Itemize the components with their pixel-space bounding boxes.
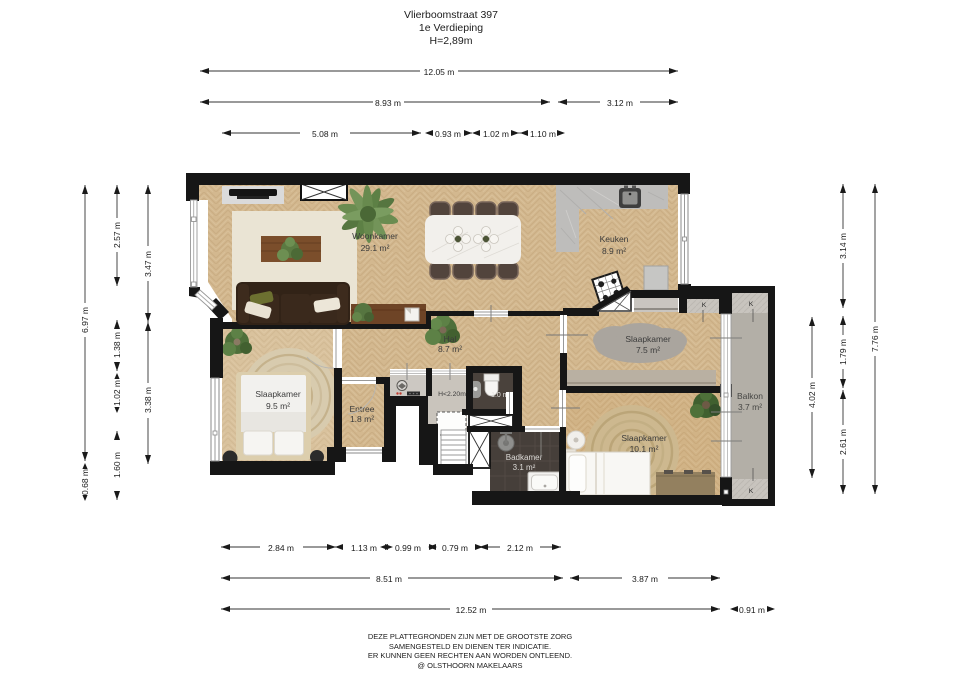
svg-text:3.47 m: 3.47 m <box>143 251 153 277</box>
svg-text:7.76 m: 7.76 m <box>870 326 880 352</box>
svg-text:10.1 m²: 10.1 m² <box>630 444 659 454</box>
svg-text:Keuken: Keuken <box>600 234 629 244</box>
svg-text:H=2,89m: H=2,89m <box>430 35 473 47</box>
svg-text:1.13 m: 1.13 m <box>351 543 377 553</box>
svg-text:8.7 m²: 8.7 m² <box>438 344 462 354</box>
svg-text:Badkamer: Badkamer <box>506 453 543 462</box>
svg-text:3.12 m: 3.12 m <box>607 98 633 108</box>
svg-text:0.93 m: 0.93 m <box>435 129 461 139</box>
svg-text:3.14 m: 3.14 m <box>838 233 848 259</box>
svg-text:1e Verdieping: 1e Verdieping <box>419 22 483 34</box>
svg-text:DEZE PLATTEGRONDEN ZIJN MET DE: DEZE PLATTEGRONDEN ZIJN MET DE GROOTSTE … <box>368 632 572 641</box>
svg-text:12.05 m: 12.05 m <box>424 67 455 77</box>
svg-text:1.60 m: 1.60 m <box>112 452 122 478</box>
svg-text:1.38 m: 1.38 m <box>112 332 122 358</box>
svg-text:Woonkamer: Woonkamer <box>352 231 398 241</box>
svg-text:Vlierboomstraat 397: Vlierboomstraat 397 <box>404 9 498 21</box>
svg-text:0.68 m: 0.68 m <box>80 469 90 495</box>
svg-text:1.10 m: 1.10 m <box>530 129 556 139</box>
svg-text:Hal: Hal <box>444 334 457 344</box>
svg-text:8.9 m²: 8.9 m² <box>602 246 626 256</box>
svg-text:3.38 m: 3.38 m <box>143 387 153 413</box>
svg-text:2.12 m: 2.12 m <box>507 543 533 553</box>
svg-text:ER KUNNEN GEEN RECHTEN AAN WOR: ER KUNNEN GEEN RECHTEN AAN WORDEN ONTLEE… <box>368 651 572 660</box>
svg-text:3.1 m²: 3.1 m² <box>513 463 536 472</box>
svg-text:@ OLSTHOORN MAKELAARS: @ OLSTHOORN MAKELAARS <box>417 661 522 670</box>
svg-text:1.8 m²: 1.8 m² <box>350 414 374 424</box>
svg-text:8.93 m: 8.93 m <box>375 98 401 108</box>
svg-text:K: K <box>702 302 707 309</box>
svg-text:H<2.20m: H<2.20m <box>438 391 466 398</box>
svg-text:2.57 m: 2.57 m <box>112 222 122 248</box>
svg-text:K: K <box>749 301 754 308</box>
svg-text:3.7 m²: 3.7 m² <box>738 402 762 412</box>
svg-text:Balkon: Balkon <box>737 391 763 401</box>
svg-text:0.91 m: 0.91 m <box>739 605 765 615</box>
svg-text:8.51 m: 8.51 m <box>376 574 402 584</box>
svg-text:1.79 m: 1.79 m <box>838 339 848 365</box>
svg-text:3.87 m: 3.87 m <box>632 574 658 584</box>
svg-text:SAMENGESTELD EN DIENEN TER IND: SAMENGESTELD EN DIENEN TER INDICATIE. <box>389 642 551 651</box>
svg-text:9.5 m²: 9.5 m² <box>266 401 290 411</box>
svg-text:4.02 m: 4.02 m <box>807 382 817 408</box>
svg-text:2.61 m: 2.61 m <box>838 429 848 455</box>
svg-text:5.08 m: 5.08 m <box>312 129 338 139</box>
svg-text:Slaapkamer: Slaapkamer <box>625 334 671 344</box>
svg-text:29.1 m²: 29.1 m² <box>361 243 390 253</box>
svg-text:6.97 m: 6.97 m <box>80 307 90 333</box>
svg-text:0.99 m: 0.99 m <box>395 543 421 553</box>
svg-text:0.79 m: 0.79 m <box>442 543 468 553</box>
svg-text:Slaapkamer: Slaapkamer <box>621 433 667 443</box>
svg-text:2.84 m: 2.84 m <box>268 543 294 553</box>
svg-text:12.52 m: 12.52 m <box>456 605 487 615</box>
svg-text:Slaapkamer: Slaapkamer <box>255 389 301 399</box>
svg-text:7.5 m²: 7.5 m² <box>636 345 660 355</box>
svg-text:K: K <box>749 488 754 495</box>
svg-text:1.02 m: 1.02 m <box>483 129 509 139</box>
svg-text:1.02 m: 1.02 m <box>112 380 122 406</box>
